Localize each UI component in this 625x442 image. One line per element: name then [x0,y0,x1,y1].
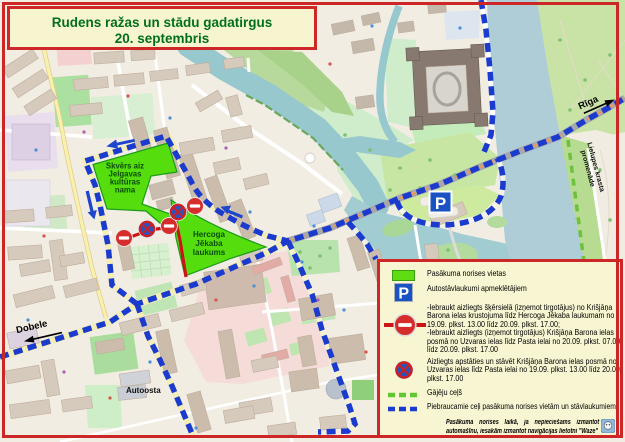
svg-text:Hercoga: Hercoga [193,230,226,239]
svg-text:laukums: laukums [193,248,226,257]
svg-text:P: P [435,194,446,213]
svg-text:P: P [398,286,409,303]
svg-text:nama: nama [115,186,136,195]
svg-text:Jēkaba: Jēkaba [195,239,223,248]
svg-text:Autoosta: Autoosta [126,386,161,395]
